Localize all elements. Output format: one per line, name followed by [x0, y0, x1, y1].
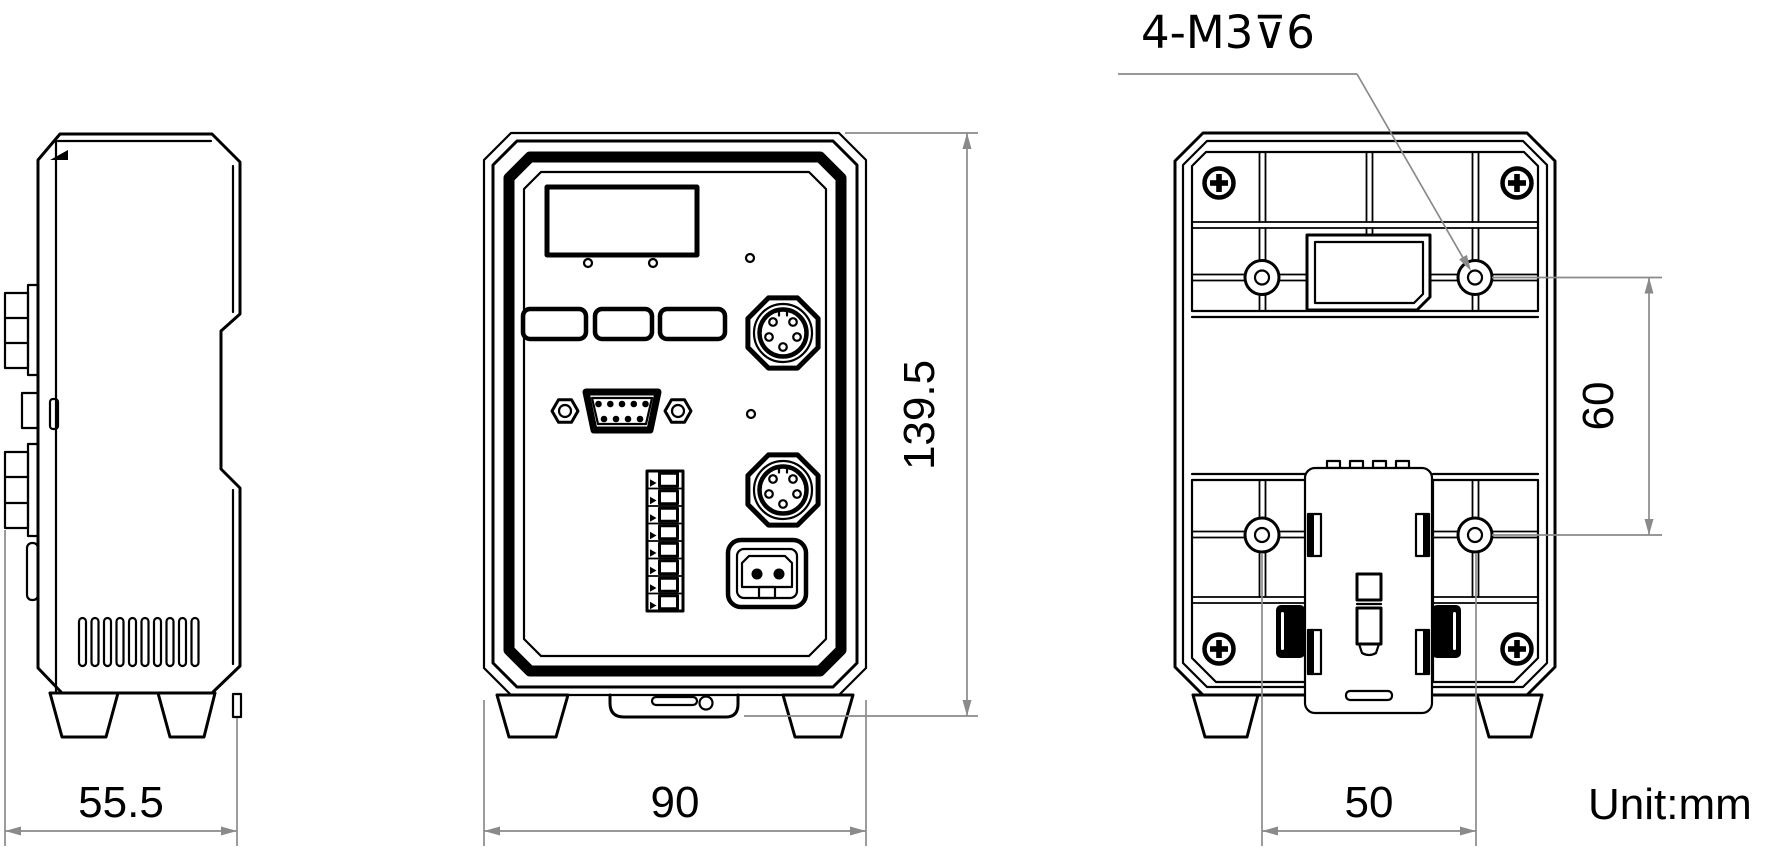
mounting-hole-top-left — [1245, 261, 1279, 295]
dimension-139-5: 139.5 — [744, 133, 978, 716]
back-foot-right — [1477, 695, 1542, 737]
front-height-dimension: 139.5 — [895, 360, 944, 470]
panel-button — [660, 309, 725, 339]
db9-serial-connector — [552, 392, 691, 430]
unit-label: Unit:mm — [1588, 780, 1752, 829]
din-clip-pad — [1432, 605, 1461, 658]
hole-spacing-vertical-dimension: 60 — [1574, 382, 1623, 431]
phillips-screw-icon — [1205, 635, 1234, 664]
hole-spacing-horizontal-dimension: 50 — [1345, 778, 1394, 827]
panel-button — [523, 309, 586, 339]
display-window — [547, 187, 697, 255]
front-view — [484, 133, 866, 737]
screw-post-icon — [665, 400, 691, 423]
mounting-hole-bottom-right — [1458, 518, 1492, 552]
thread-callout-leader: 4-M3⊽6 — [1118, 6, 1471, 271]
dimension-90: 90 — [484, 700, 866, 846]
din-clip-pad — [1276, 605, 1305, 658]
panel-button — [595, 309, 652, 339]
side-view — [5, 134, 241, 737]
mounting-hole-top-right — [1458, 261, 1492, 295]
led-indicator — [746, 254, 754, 262]
technical-drawing-canvas: 55.5 90 139.5 60 — [0, 0, 1775, 856]
power-connector — [728, 540, 806, 607]
phillips-screw-icon — [1503, 169, 1532, 198]
label-recess — [1307, 235, 1430, 310]
side-foot-left — [50, 693, 118, 737]
side-top-notch — [50, 150, 68, 160]
phillips-screw-icon — [1503, 635, 1532, 664]
front-width-dimension: 90 — [651, 778, 700, 827]
led-indicator — [584, 259, 592, 267]
phillips-screw-icon — [1205, 169, 1234, 198]
screw-post-icon — [552, 400, 578, 423]
side-width-dimension: 55.5 — [78, 778, 164, 827]
m12-connector-bottom — [748, 455, 818, 525]
mounting-hole-bottom-left — [1245, 518, 1279, 552]
thread-callout: 4-M3⊽6 — [1141, 6, 1315, 59]
din-latch — [610, 695, 738, 717]
side-connector-blocks — [5, 285, 58, 600]
side-latch-tab — [233, 694, 241, 717]
back-view — [1175, 133, 1555, 737]
side-body-outline — [38, 134, 240, 693]
terminal-block — [647, 471, 683, 611]
m12-connector-top — [748, 298, 818, 368]
led-indicator — [747, 410, 755, 418]
front-foot-left — [497, 695, 568, 737]
vent-slots — [79, 618, 199, 666]
dimension-55-5: 55.5 — [5, 530, 237, 846]
back-foot-left — [1193, 695, 1258, 737]
side-foot-right — [158, 693, 215, 737]
dimension-drawing: 55.5 90 139.5 60 — [0, 0, 1775, 856]
led-indicator — [649, 259, 657, 267]
